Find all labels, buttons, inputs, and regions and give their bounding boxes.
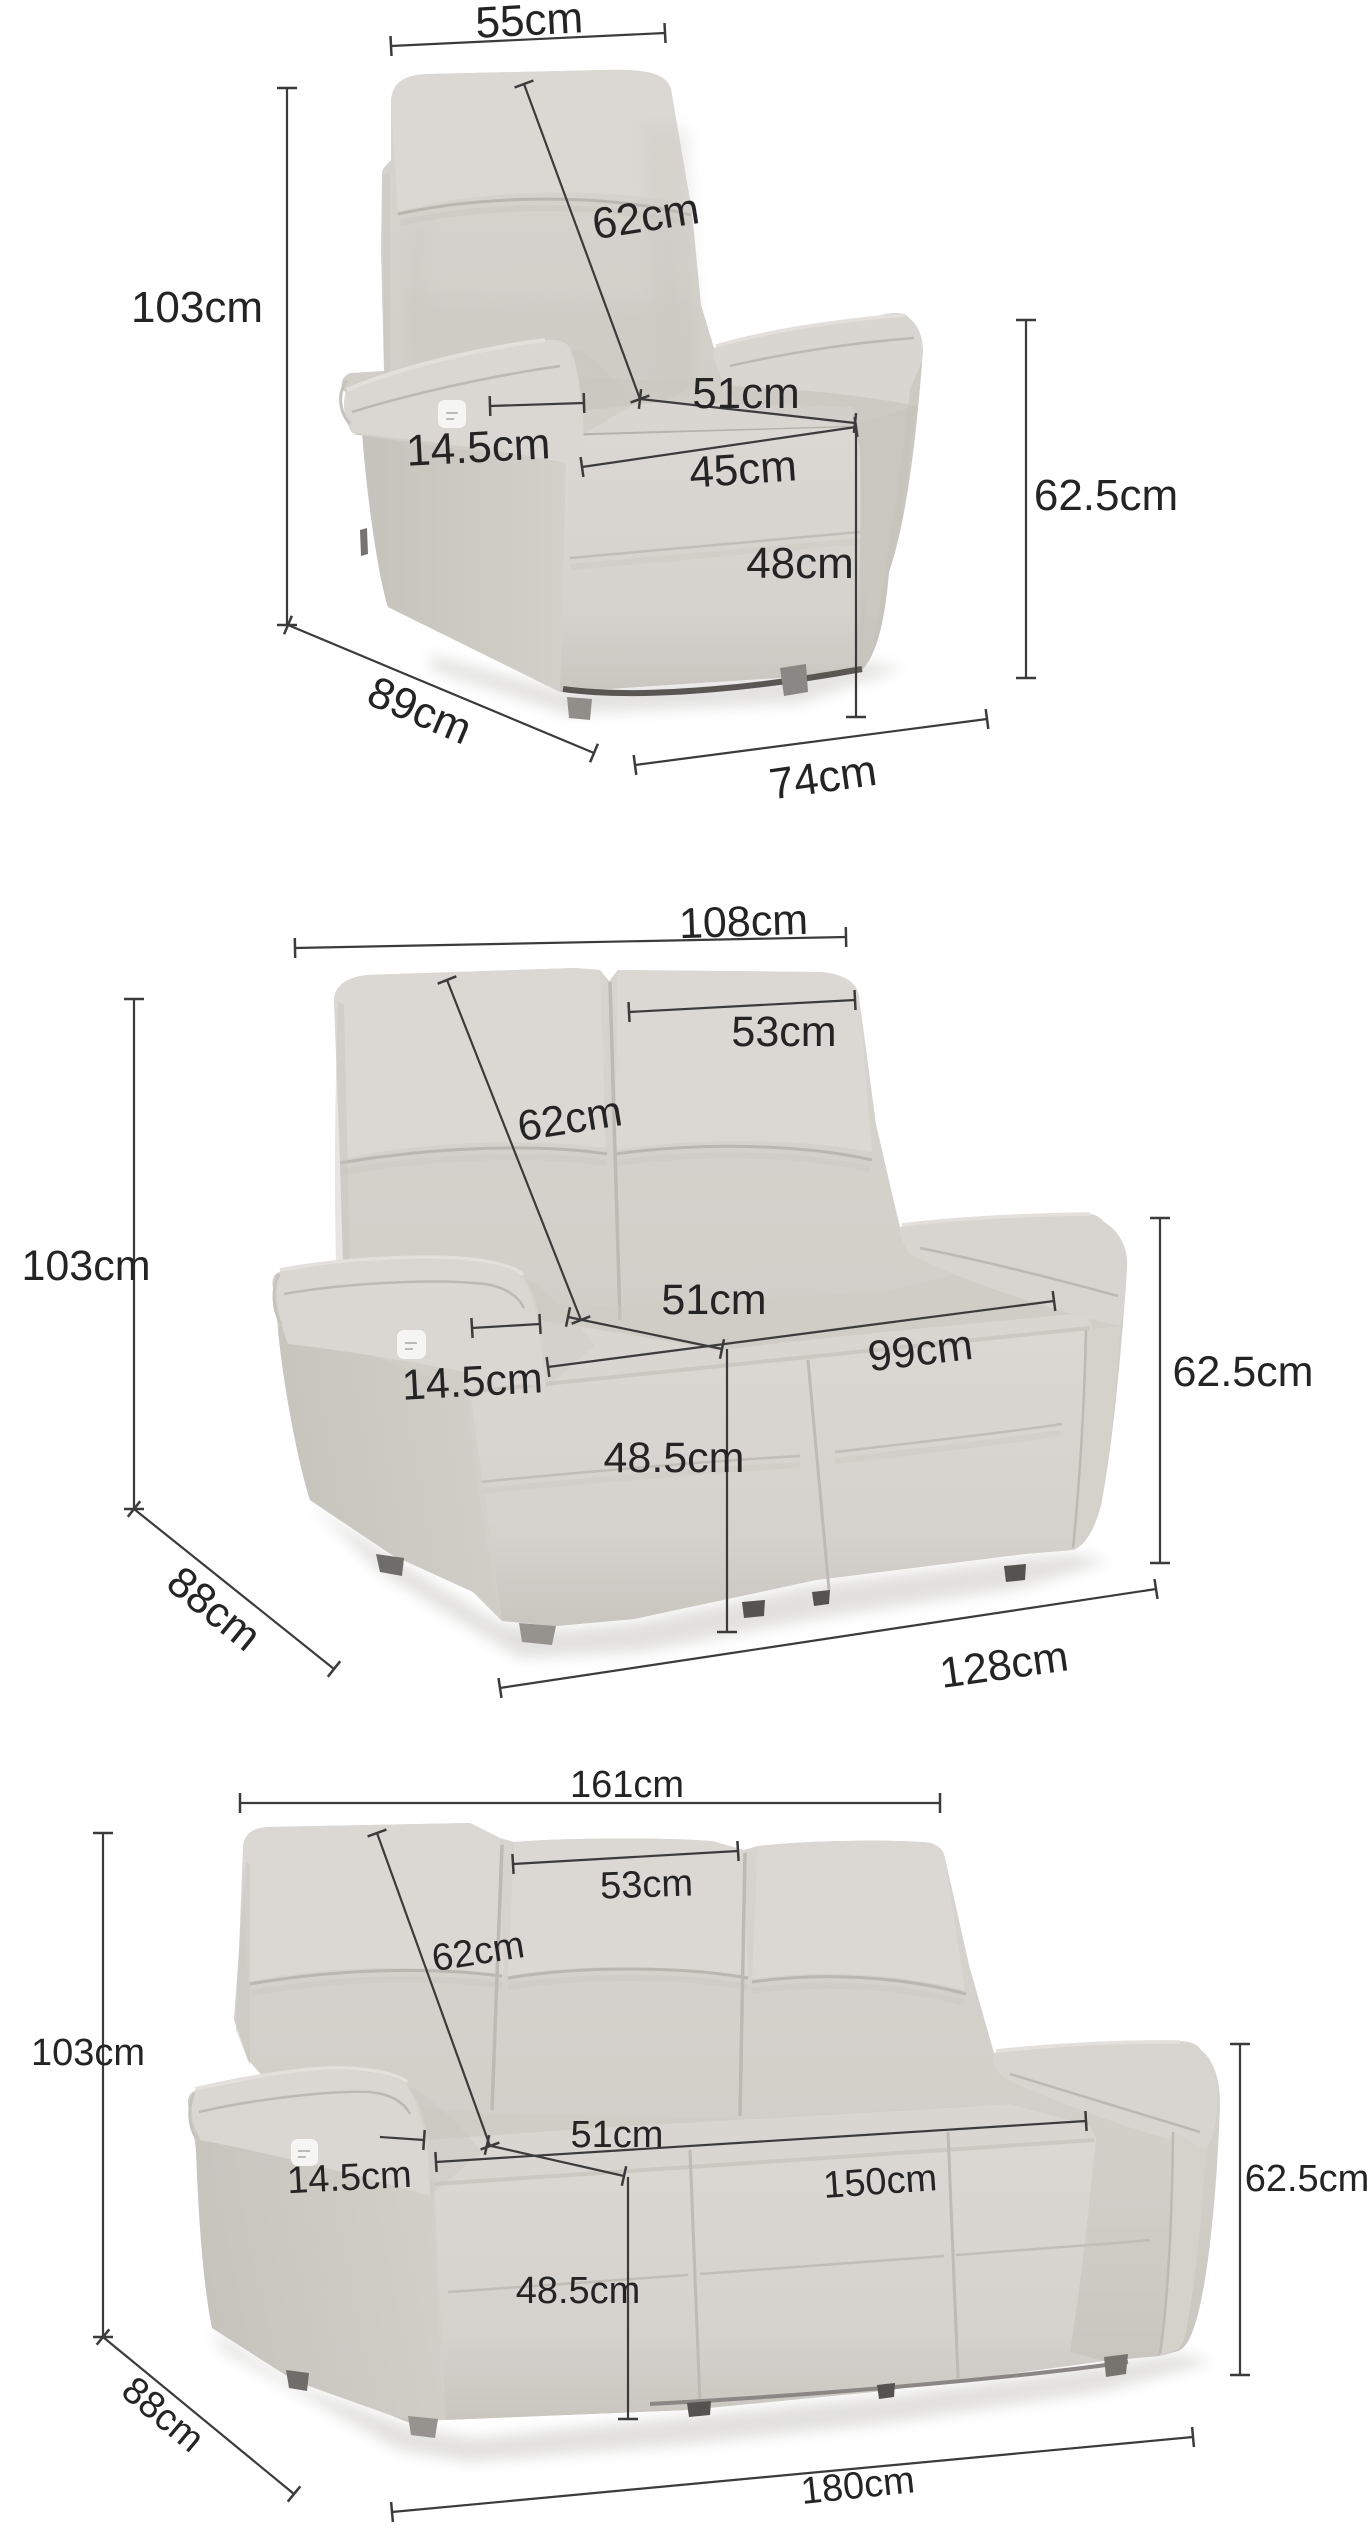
svg-text:103cm: 103cm	[31, 2032, 145, 2074]
svg-text:103cm: 103cm	[131, 283, 263, 332]
svg-text:53cm: 53cm	[599, 1862, 693, 1907]
svg-text:51cm: 51cm	[571, 2114, 664, 2156]
svg-text:53cm: 53cm	[731, 1008, 836, 1056]
svg-text:62.5cm: 62.5cm	[1172, 1348, 1313, 1396]
svg-text:62.5cm: 62.5cm	[1034, 471, 1178, 520]
svg-text:51cm: 51cm	[692, 369, 800, 418]
svg-text:161cm: 161cm	[570, 1764, 684, 1806]
svg-text:51cm: 51cm	[661, 1276, 766, 1324]
svg-text:45cm: 45cm	[688, 441, 799, 497]
svg-text:48cm: 48cm	[746, 539, 854, 588]
svg-text:150cm: 150cm	[822, 2157, 939, 2207]
svg-text:108cm: 108cm	[678, 896, 809, 948]
svg-text:103cm: 103cm	[21, 1242, 150, 1290]
svg-text:14.5cm: 14.5cm	[401, 1354, 544, 1409]
svg-text:14.5cm: 14.5cm	[286, 2154, 413, 2202]
svg-text:48.5cm: 48.5cm	[603, 1434, 744, 1482]
svg-text:62.5cm: 62.5cm	[1245, 2158, 1369, 2200]
svg-text:48.5cm: 48.5cm	[516, 2270, 641, 2312]
svg-text:55cm: 55cm	[474, 0, 584, 48]
svg-text:14.5cm: 14.5cm	[405, 419, 552, 475]
